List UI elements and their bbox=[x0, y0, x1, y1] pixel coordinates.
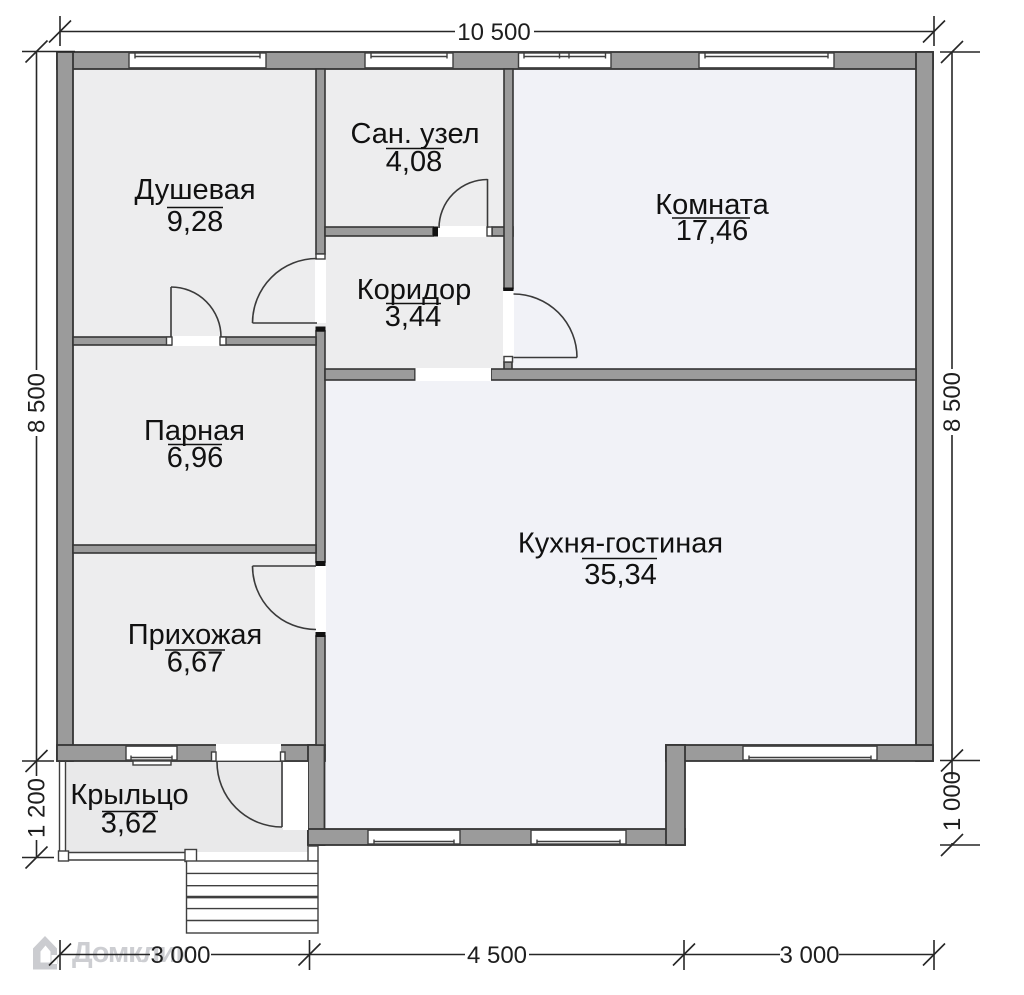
svg-text:1 200: 1 200 bbox=[24, 778, 51, 838]
svg-text:6,96: 6,96 bbox=[167, 442, 223, 474]
svg-text:1 000: 1 000 bbox=[939, 771, 966, 831]
svg-text:17,46: 17,46 bbox=[676, 215, 749, 247]
svg-text:Кухня-гостиная: Кухня-гостиная bbox=[518, 528, 723, 560]
svg-text:4 500: 4 500 bbox=[467, 942, 527, 969]
svg-text:6,67: 6,67 bbox=[167, 647, 223, 679]
svg-text:9,28: 9,28 bbox=[167, 206, 223, 238]
svg-text:Душевая: Душевая bbox=[134, 174, 255, 206]
svg-text:4,08: 4,08 bbox=[386, 146, 442, 178]
svg-text:3,62: 3,62 bbox=[101, 808, 157, 840]
svg-text:3 000: 3 000 bbox=[150, 942, 210, 969]
svg-text:3,44: 3,44 bbox=[385, 301, 441, 333]
svg-text:3 000: 3 000 bbox=[779, 942, 839, 969]
svg-text:8 500: 8 500 bbox=[939, 372, 966, 432]
svg-text:8 500: 8 500 bbox=[24, 373, 51, 433]
svg-text:10 500: 10 500 bbox=[457, 19, 530, 46]
svg-text:Крыльцо: Крыльцо bbox=[70, 779, 188, 811]
svg-text:35,34: 35,34 bbox=[584, 559, 657, 591]
